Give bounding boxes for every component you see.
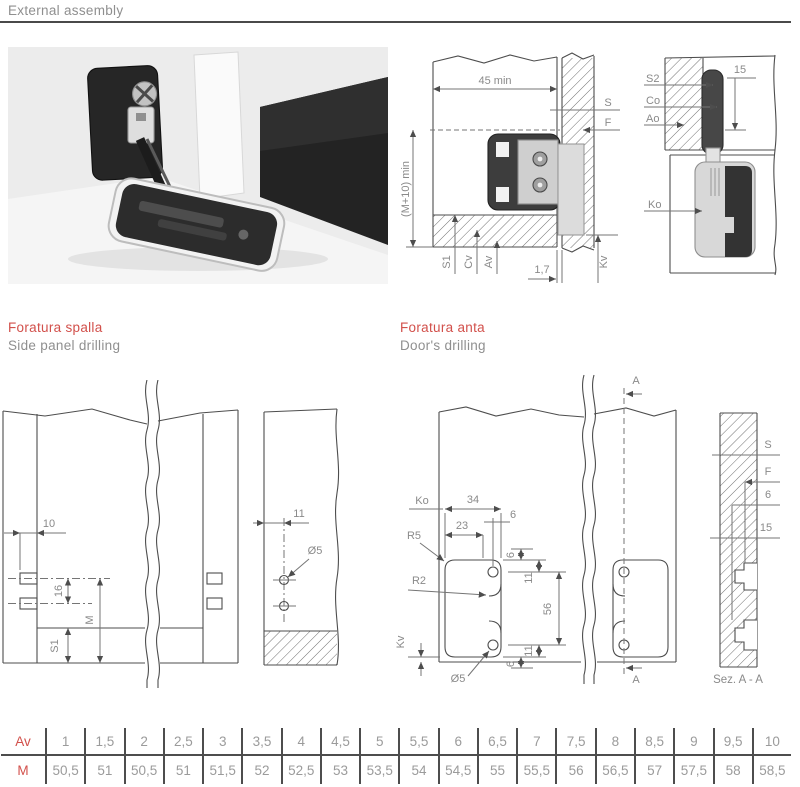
table-cell-m-5: 52 bbox=[241, 756, 280, 784]
label-s1: S1 bbox=[49, 639, 61, 652]
label-ko: Ko bbox=[648, 199, 661, 211]
door-drilling-drawing: A A Ko 34 23 6 6 11 56 bbox=[396, 372, 688, 690]
dim-23: 23 bbox=[456, 520, 468, 532]
edge-view-lines bbox=[264, 409, 339, 665]
side-panel-edge-drawing: 11 Ø5 bbox=[251, 383, 401, 683]
dim-15: 15 bbox=[760, 522, 772, 534]
table-row-av: Av 11,522,533,544,555,566,577,588,599,51… bbox=[1, 728, 791, 756]
divider-panel bbox=[194, 52, 244, 199]
dim-6-top: 6 bbox=[510, 509, 516, 521]
section-aa-caption: Sez. A - A bbox=[713, 674, 763, 686]
table-cell-m-1: 51 bbox=[84, 756, 123, 784]
door-panel-lines bbox=[439, 375, 676, 684]
hinge-pockets bbox=[445, 560, 668, 657]
dim-hole-diameter: Ø5 bbox=[451, 673, 466, 685]
table-cell-m-12: 55,5 bbox=[516, 756, 555, 784]
table-cell-m-14: 56,5 bbox=[595, 756, 634, 784]
label-cv: Cv bbox=[463, 255, 475, 269]
table-cell-m-3: 51 bbox=[163, 756, 202, 784]
table-cell-m-4: 51,5 bbox=[202, 756, 241, 784]
table-cell-m-2: 50,5 bbox=[124, 756, 163, 784]
assembly-photo bbox=[8, 47, 388, 284]
anta-title: Foratura anta bbox=[400, 320, 485, 335]
table-cell-av-17: 9,5 bbox=[713, 728, 752, 754]
table-cell-av-12: 7 bbox=[516, 728, 555, 754]
table-cell-av-4: 3 bbox=[202, 728, 241, 754]
table-cell-m-0: 50,5 bbox=[45, 756, 84, 784]
header-divider bbox=[0, 21, 791, 23]
table-cell-av-9: 5,5 bbox=[398, 728, 437, 754]
label-s1: S1 bbox=[441, 255, 453, 268]
table-cell-av-5: 3,5 bbox=[241, 728, 280, 754]
table-cell-av-15: 8,5 bbox=[634, 728, 673, 754]
dim-11: 11 bbox=[293, 508, 304, 520]
table-cell-m-7: 53 bbox=[320, 756, 359, 784]
label-s2: S2 bbox=[646, 73, 659, 85]
table-cell-m-10: 54,5 bbox=[438, 756, 477, 784]
table-cell-av-10: 6 bbox=[438, 728, 477, 754]
table-row-m: M 50,55150,55151,55252,55353,55454,55555… bbox=[1, 756, 791, 784]
edge-view-dimensions: 11 Ø5 bbox=[253, 508, 322, 623]
dim-34: 34 bbox=[467, 494, 479, 506]
door-drilling-dimensions: A A Ko 34 23 6 6 11 56 bbox=[396, 375, 642, 686]
table-cell-m-9: 54 bbox=[398, 756, 437, 784]
screw-hole bbox=[488, 640, 498, 650]
label-ko: Ko bbox=[415, 495, 428, 507]
table-cell-av-2: 2 bbox=[124, 728, 163, 754]
label-r2: R2 bbox=[412, 575, 426, 587]
side-panel-dimensions: 10 16 M S1 bbox=[4, 518, 110, 663]
dim-11-upper: 11 bbox=[523, 572, 535, 583]
label-ao: Ao bbox=[646, 113, 659, 125]
table-cell-av-0: 1 bbox=[45, 728, 84, 754]
dim-11-lower: 11 bbox=[523, 645, 535, 656]
label-co: Co bbox=[646, 95, 660, 107]
table-cell-av-3: 2,5 bbox=[163, 728, 202, 754]
table-cell-m-8: 53,5 bbox=[359, 756, 398, 784]
section-aa-drawing: S F 6 15 Sez. A - A bbox=[692, 395, 797, 687]
table-cell-av-1: 1,5 bbox=[84, 728, 123, 754]
door-edge-detail-drawing: 15 S2 Co Ao Ko bbox=[628, 42, 793, 290]
section-a-bottom: A bbox=[632, 674, 640, 686]
table-cell-m-13: 56 bbox=[555, 756, 594, 784]
side-panel-drilling-drawing: 10 16 M S1 bbox=[0, 380, 245, 688]
table-cell-av-8: 5 bbox=[359, 728, 398, 754]
table-cell-av-13: 7,5 bbox=[555, 728, 594, 754]
table-cell-m-6: 52,5 bbox=[281, 756, 320, 784]
dim-1-7: 1,7 bbox=[534, 264, 549, 276]
label-r5: R5 bbox=[407, 530, 421, 542]
assembly-photo-render bbox=[8, 47, 388, 284]
anta-subtitle: Door's drilling bbox=[400, 338, 486, 353]
label-kv: Kv bbox=[598, 255, 610, 268]
av-m-table: Av 11,522,533,544,555,566,577,588,599,51… bbox=[1, 728, 791, 784]
label-m: M bbox=[84, 615, 96, 624]
dim-hole-diameter: Ø5 bbox=[308, 545, 323, 557]
label-f: F bbox=[765, 466, 772, 478]
table-cell-av-14: 8 bbox=[595, 728, 634, 754]
assembly-section-drawing: 45 min S F (M+10) min S1 Cv Av 1,7 Kv bbox=[400, 42, 622, 290]
catalog-page: External assembly bbox=[0, 0, 800, 787]
table-cell-av-11: 6,5 bbox=[477, 728, 516, 754]
section-aa-lines bbox=[720, 413, 757, 667]
table-cell-av-16: 9 bbox=[673, 728, 712, 754]
table-cell-m-11: 55 bbox=[477, 756, 516, 784]
dim-16: 16 bbox=[53, 585, 65, 597]
spalla-title: Foratura spalla bbox=[8, 320, 103, 335]
dim-45min: 45 min bbox=[478, 75, 511, 87]
dim-56: 56 bbox=[542, 603, 554, 615]
dim-10: 10 bbox=[43, 518, 55, 530]
table-cell-av-6: 4 bbox=[281, 728, 320, 754]
table-cell-m-16: 57,5 bbox=[673, 756, 712, 784]
label-s: S bbox=[604, 97, 611, 109]
table-row-label-av: Av bbox=[1, 728, 45, 754]
dim-6-upper: 6 bbox=[505, 552, 517, 558]
table-cell-m-15: 57 bbox=[634, 756, 673, 784]
table-cell-av-7: 4,5 bbox=[320, 728, 359, 754]
spalla-subtitle: Side panel drilling bbox=[8, 338, 120, 353]
table-cell-m-17: 58 bbox=[713, 756, 752, 784]
dowel-hole bbox=[207, 573, 222, 584]
dowel-hole bbox=[207, 598, 222, 609]
label-f: F bbox=[605, 117, 612, 129]
dim-6: 6 bbox=[765, 489, 771, 501]
dim-15: 15 bbox=[734, 64, 746, 76]
hinge-detail bbox=[695, 70, 755, 257]
dim-6-lower: 6 bbox=[505, 661, 517, 667]
label-av: Av bbox=[483, 255, 495, 268]
section-a-top: A bbox=[632, 375, 640, 387]
label-s: S bbox=[764, 439, 771, 451]
screw-hole bbox=[488, 567, 498, 577]
page-title: External assembly bbox=[8, 3, 123, 18]
table-cell-av-18: 10 bbox=[752, 728, 791, 754]
table-row-label-m: M bbox=[1, 756, 45, 784]
side-panel-lines bbox=[3, 380, 238, 688]
label-kv: Kv bbox=[396, 635, 407, 648]
table-cell-m-18: 58,5 bbox=[752, 756, 791, 784]
dim-m10-min: (M+10) min bbox=[400, 161, 412, 217]
